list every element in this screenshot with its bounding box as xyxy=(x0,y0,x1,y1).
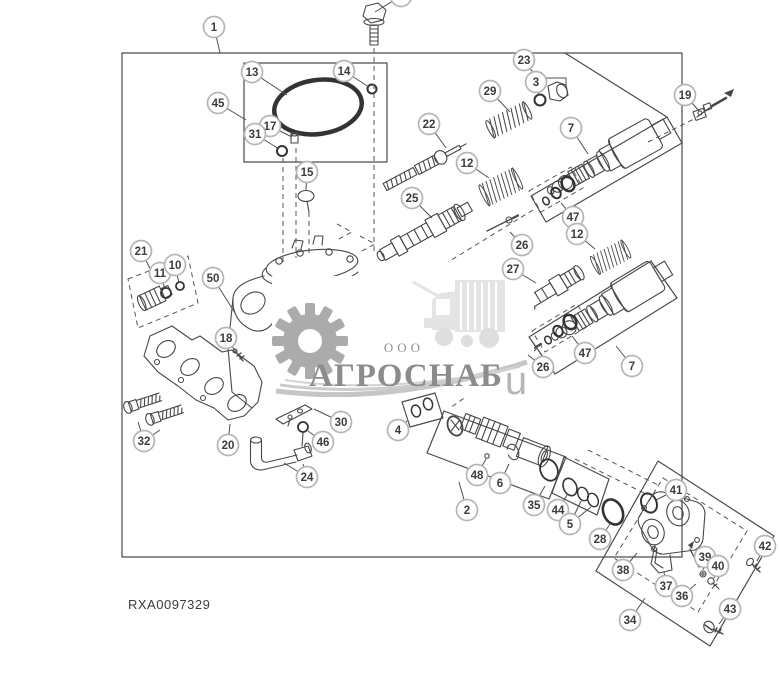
callout-3: 3 xyxy=(526,72,547,96)
svg-text:30: 30 xyxy=(335,417,348,429)
callout-34: 34 xyxy=(620,598,646,631)
gasket-box xyxy=(244,63,387,162)
callout-1: 1 xyxy=(204,17,225,54)
callout-12: 12 xyxy=(567,224,596,250)
callout-20: 20 xyxy=(218,424,239,456)
watermark-prefix: ООО xyxy=(384,340,424,355)
svg-text:35: 35 xyxy=(528,500,541,512)
solenoid-assembly-bottom xyxy=(529,253,677,374)
callout-29: 29 xyxy=(480,81,511,113)
callout-15: 15 xyxy=(297,162,318,191)
svg-text:32: 32 xyxy=(138,436,151,448)
svg-text:22: 22 xyxy=(423,119,436,131)
solenoid-assembly-top xyxy=(529,111,682,222)
svg-text:7: 7 xyxy=(629,361,635,373)
pin-48 xyxy=(485,454,489,458)
callout-7: 7 xyxy=(561,118,589,155)
assembly-axis-line xyxy=(565,53,667,117)
callout-32: 32 xyxy=(134,422,161,452)
callout-6: 6 xyxy=(490,464,511,494)
svg-text:46: 46 xyxy=(317,437,330,449)
svg-text:2: 2 xyxy=(464,505,470,517)
spool-25 xyxy=(373,198,475,266)
o-ring-13 xyxy=(271,74,366,140)
screw-43 xyxy=(702,619,723,634)
watermark: ООО АГРОСНАБ u xyxy=(272,276,534,403)
svg-text:26: 26 xyxy=(516,240,529,252)
callout-4: 4 xyxy=(388,420,409,441)
svg-text:41: 41 xyxy=(670,485,683,497)
o-ring-14 xyxy=(368,85,377,94)
o-ring-41 xyxy=(638,491,660,515)
exploded-parts-diagram: ООО АГРОСНАБ u xyxy=(0,0,781,681)
svg-text:20: 20 xyxy=(222,440,235,452)
spring-12a xyxy=(477,167,524,206)
watermark-suffix: u xyxy=(505,359,527,403)
svg-text:15: 15 xyxy=(301,167,314,179)
svg-text:1: 1 xyxy=(211,22,218,34)
seal-kit-4 xyxy=(402,393,443,427)
svg-text:48: 48 xyxy=(471,470,484,482)
callout-19: 19 xyxy=(675,85,700,112)
callout-48: 48 xyxy=(467,459,488,486)
connector-19 xyxy=(693,89,734,120)
spring-29 xyxy=(484,101,533,139)
svg-text:10: 10 xyxy=(169,260,182,272)
o-ring-46 xyxy=(298,422,308,432)
svg-text:29: 29 xyxy=(484,86,497,98)
figure-part-number: RXA0097329 xyxy=(128,597,210,612)
callout-28: 28 xyxy=(590,524,611,550)
callout-47: 47 xyxy=(572,336,596,364)
callout-partial xyxy=(375,0,412,12)
callout-50: 50 xyxy=(203,268,236,314)
callout-7: 7 xyxy=(616,346,643,377)
callout-26: 26 xyxy=(510,232,533,256)
svg-text:12: 12 xyxy=(461,158,474,170)
plug-15 xyxy=(298,191,314,213)
callout-24: 24 xyxy=(284,463,318,488)
svg-text:36: 36 xyxy=(676,591,689,603)
svg-text:34: 34 xyxy=(624,615,637,627)
nut-36 xyxy=(700,571,706,577)
svg-text:5: 5 xyxy=(567,519,574,531)
svg-text:27: 27 xyxy=(507,264,520,276)
ring-44 xyxy=(560,476,579,498)
svg-text:3: 3 xyxy=(533,77,539,89)
svg-text:50: 50 xyxy=(207,273,220,285)
callout-45: 45 xyxy=(208,93,247,121)
mounting-bolt xyxy=(363,3,386,45)
svg-text:23: 23 xyxy=(518,55,531,67)
svg-text:47: 47 xyxy=(579,348,592,360)
callout-22: 22 xyxy=(419,114,447,149)
screw-18 xyxy=(233,349,244,361)
svg-text:28: 28 xyxy=(594,534,607,546)
callout-36: 36 xyxy=(672,584,697,607)
pin-26a xyxy=(487,216,518,232)
svg-text:26: 26 xyxy=(537,362,550,374)
o-ring-10 xyxy=(176,282,184,290)
svg-text:38: 38 xyxy=(617,565,630,577)
bracket-37 xyxy=(651,545,672,573)
bolt-32a xyxy=(122,391,162,414)
cover-plate xyxy=(144,326,262,420)
callout-13: 13 xyxy=(242,62,288,96)
callout-2: 2 xyxy=(457,482,478,521)
callout-42: 42 xyxy=(755,536,776,562)
parts-diagram-page: ООО АГРОСНАБ u xyxy=(0,0,781,681)
svg-text:13: 13 xyxy=(246,67,259,79)
callout-40: 40 xyxy=(708,556,729,579)
svg-text:24: 24 xyxy=(301,472,314,484)
o-ring-31 xyxy=(277,146,287,156)
bolt-32b xyxy=(144,403,184,426)
callout-30: 30 xyxy=(314,409,352,433)
callout-21: 21 xyxy=(131,241,153,273)
svg-text:4: 4 xyxy=(395,425,402,437)
svg-text:31: 31 xyxy=(249,129,262,141)
svg-text:40: 40 xyxy=(712,561,725,573)
svg-text:7: 7 xyxy=(568,123,574,135)
svg-text:42: 42 xyxy=(759,541,772,553)
svg-text:21: 21 xyxy=(135,246,148,258)
svg-text:12: 12 xyxy=(571,229,584,241)
svg-text:6: 6 xyxy=(497,478,503,490)
plug-17 xyxy=(291,132,298,143)
svg-text:18: 18 xyxy=(220,333,233,345)
oil-tube-group xyxy=(251,405,313,470)
spring-12b xyxy=(589,239,632,275)
end-plate-38 xyxy=(638,492,705,554)
svg-text:43: 43 xyxy=(724,604,737,616)
watermark-company-name: АГРОСНАБ xyxy=(309,358,503,394)
callout-12: 12 xyxy=(457,153,490,179)
svg-text:19: 19 xyxy=(679,90,692,102)
svg-text:45: 45 xyxy=(212,98,225,110)
callout-43: 43 xyxy=(719,599,741,625)
callout-25: 25 xyxy=(402,188,433,219)
svg-text:14: 14 xyxy=(338,66,351,78)
svg-text:47: 47 xyxy=(567,212,580,224)
svg-text:37: 37 xyxy=(660,581,673,593)
svg-text:25: 25 xyxy=(406,193,419,205)
